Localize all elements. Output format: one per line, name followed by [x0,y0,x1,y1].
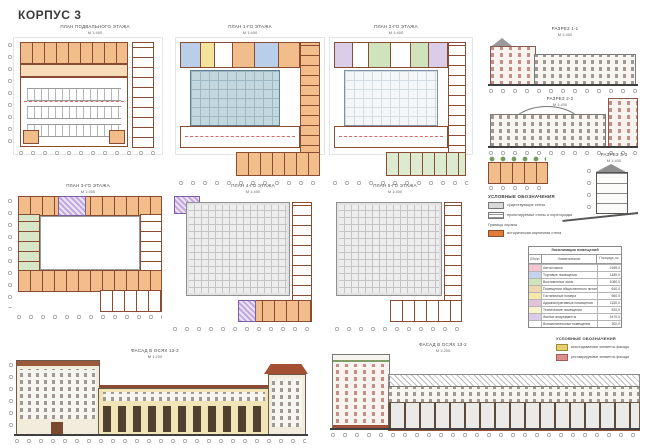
facade-right-building-a [332,354,390,430]
table-row: Вспомогательные помещения 300,0 [529,320,621,327]
room-name: Вспомогательные помещения [542,321,598,327]
room-cell [368,42,392,68]
plan-floor2-room-band [334,42,446,66]
plan-floor1-title: ПЛАН 1-ГО ЭТАЖА М 1:400 [195,24,305,35]
axis-bubbles-left [7,42,13,148]
col-header: Наименование [542,255,597,263]
section-2-2-tower [608,98,638,148]
ground-line [488,146,638,148]
room-area: 1150,0 [598,300,621,306]
plan-floor1-lower-hall [180,126,300,148]
room-color-swatch [529,279,542,285]
route-line [24,101,124,102]
arched-windows-row [103,406,265,432]
section-1-1-title: РАЗРЕЗ 1-1 М 1:400 [510,26,620,37]
parking-row [27,124,121,137]
room-name: Жилые апартаменты [542,314,598,320]
utility-room [23,130,39,144]
table-row: Помещения общественного питания 640,0 [529,285,621,292]
legend-title: УСЛОВНЫЕ ОБОЗНАЧЕНИЯ [556,336,646,341]
axis-bubbles-bottom [18,150,156,156]
room-name: Технические помещения [542,307,598,313]
room-color-swatch [529,286,542,292]
room-area: 1080,0 [598,279,621,285]
facade-right-arcade [388,402,640,431]
window-grid [272,379,302,427]
room-cell [278,42,300,68]
plan-basement-room-band [20,42,128,64]
plan-basement-title: ПЛАН ПОДВАЛЬНОГО ЭТАЖА М 1:400 [40,24,150,35]
mansard-hatch [238,300,256,322]
plan-floor2-hall [344,70,438,126]
plan-floor1-bottom-band [236,152,320,176]
col-header: Обозн. [529,255,542,263]
section-1-1-main-block [534,54,636,86]
legend-item: проектируемые стены и перегородки [488,212,588,219]
room-name: Выставочные залы [542,279,598,285]
room-color-swatch [529,265,542,271]
axis-bubbles-bottom [14,438,306,444]
col-header: Площадь, м² [597,255,621,263]
axis-bubbles-bottom [330,432,638,438]
plan-floor3-wing-band [100,290,162,312]
room-color-swatch [529,300,542,306]
room-name: Торговые помещения [542,272,598,278]
plan-basement-parking-hall [20,77,128,147]
new-wall-swatch [488,212,504,219]
legend-item: историческая кирпичная стена [488,230,588,237]
parking-row [27,88,121,101]
room-area: 960,0 [598,293,621,299]
table-row: Торговые помещения 1180,0 [529,271,621,278]
section-3-3-title: РАЗРЕЗ 3-3 М 1:400 [583,152,645,163]
plan-floor2-title: ПЛАН 2-ГО ЭТАЖА М 1:400 [341,24,451,35]
room-area: 520,0 [598,307,621,313]
plan-floor3-top-band [18,196,162,216]
legend-facades: УСЛОВНЫЕ ОБОЗНАЧЕНИЯ воссоздаваемые элем… [556,336,646,361]
table-row: Гостиничные номера 960,0 [529,292,621,299]
room-color-swatch [529,293,542,299]
axis-bubbles-bottom [16,314,162,320]
room-area: 1470,0 [598,314,621,320]
facade-left-building-c [268,374,306,436]
facade-left-building-b [98,388,270,436]
room-area: 640,0 [598,286,621,292]
room-cell [334,42,354,68]
table-row: Административные помещения 1150,0 [529,299,621,306]
room-cell [254,42,280,68]
section-gable [492,38,512,46]
roof-line [99,385,269,388]
room-name: Гостиничные номера [542,293,598,299]
restored-elements-swatch [556,354,568,361]
legend-title: УСЛОВНЫЕ ОБОЗНАЧЕНИЯ [488,194,588,199]
page-title: КОРПУС 3 [18,8,81,22]
street-fragment [488,162,548,184]
route-line [339,136,443,137]
room-name: Помещения общественного питания [542,286,598,292]
plan-floor3-bottom-band [18,270,162,292]
room-color-swatch [529,272,542,278]
axis-bubbles-bottom [488,185,548,191]
window-grid [103,392,265,401]
window-grid [20,369,96,419]
legend-item: воссоздаваемые элементы фасада [556,344,646,351]
table-row: Выставочные залы 1080,0 [529,278,621,285]
ground-line [488,84,638,86]
section-3-3-building [596,172,628,214]
plan-floor5-bottom-band [390,300,462,322]
plan-basement-corridor [20,64,128,77]
legend-sections: УСЛОВНЫЕ ОБОЗНАЧЕНИЯ существующие стены … [488,194,588,237]
window-grid [336,364,386,423]
existing-wall-swatch [488,202,504,209]
room-area: 1180,0 [598,272,621,278]
table-row: Технические помещения 520,0 [529,306,621,313]
legend-item: существующие стены [488,202,588,209]
utility-room [109,130,125,144]
room-cell [390,42,412,68]
table-row: Автостоянка 2185,0 [529,264,621,271]
room-color-swatch [529,321,542,327]
plan-floor3-title: ПЛАН 3-ГО ЭТАЖА М 1:400 [33,183,143,194]
table-header-row: Обозн. Наименование Площадь, м² [529,255,621,264]
axis-bubbles-left [7,198,13,308]
plan-floor5-roof [336,202,442,296]
plan-floor2-lower-hall [334,126,448,148]
plan-floor5-wing [444,202,462,316]
plan-floor4-roof [186,202,290,296]
recreated-elements-swatch [556,344,568,351]
cornice [17,361,99,366]
plan-floor4-wing [292,202,312,316]
room-color-swatch [529,307,542,313]
parking-row [27,106,121,119]
room-cell [232,42,256,68]
room-cell [428,42,448,68]
green-cornice [333,360,389,362]
plan-floor1-room-band [180,42,298,66]
plan-floor2-bottom-band [386,152,466,176]
section-2-2-main-block [490,114,606,148]
room-area: 300,0 [598,321,621,327]
plan-floor1-atrium [190,70,280,126]
room-cell [410,42,430,68]
section-gable [596,164,626,172]
axis-bubbles-bottom [488,88,638,94]
table-row: Жилые апартаменты 1470,0 [529,313,621,320]
plan-basement-wing [132,42,154,148]
section-1-1-left-block [490,46,536,86]
room-name: Административные помещения [542,300,598,306]
mansard-hatch [58,196,86,216]
table-body: Автостоянка 2185,0 Торговые помещения 11… [529,264,621,327]
plan-floor4-title: ПЛАН 4-ГО ЭТАЖА М 1:400 [198,183,308,194]
drawing-sheet: КОРПУС 3 ПЛАН ПОДВАЛЬНОГО ЭТАЖА М 1:400 … [0,0,650,448]
plan-floor3-courtyard [40,216,140,270]
section-2-2-title: РАЗРЕЗ 2-2 М 1:400 [505,96,615,107]
plan-floor5-title: ПЛАН 5-ГО ЭТАЖА М 1:400 [340,183,450,194]
table-title: Экспликация помещений [529,247,621,255]
facade-left-title: ФАСАД В ОСЯХ 13-2 М 1:200 [100,348,210,359]
ground-line [14,434,308,436]
room-cell [180,42,202,68]
axis-bubbles-bottom [334,326,464,332]
historic-wall-swatch [488,230,504,237]
legend-item: реставрируемые элементы фасада [556,354,646,361]
facade-right-title: ФАСАД В ОСЯХ 13-2 М 1:200 [388,342,498,353]
axis-bubbles-bottom [172,326,312,332]
room-area: 2185,0 [598,265,621,271]
legend-subheading: Границы охраны [488,223,588,227]
room-color-swatch [529,314,542,320]
room-schedule-table: Экспликация помещений Обозн. Наименовани… [528,246,622,328]
red-roof [264,364,308,374]
route-line [185,136,295,137]
facade-left-building-a [16,360,100,436]
room-name: Автостоянка [542,265,598,271]
elevation-marks [8,362,14,432]
room-cell [214,42,234,68]
ground-line [330,428,640,430]
